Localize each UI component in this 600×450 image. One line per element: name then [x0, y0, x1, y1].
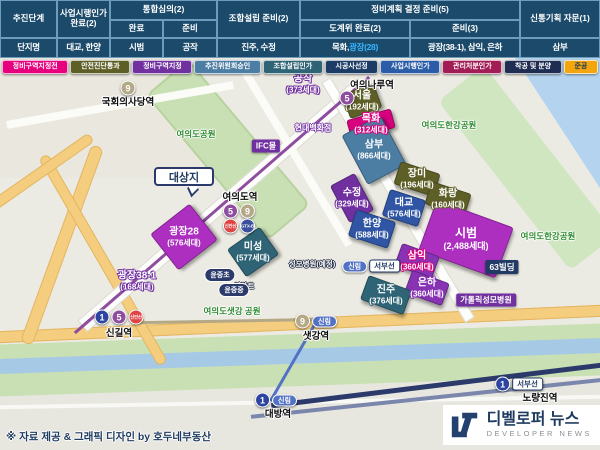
complex-units: (196세대)	[400, 180, 433, 189]
line-badge: 신림	[342, 260, 367, 272]
credit-text: ※ 자료 제공 & 그래픽 디자인 by 호두네부동산	[6, 429, 211, 444]
stage-col-sintong-advice: 신통기획 자문(1)	[520, 0, 600, 38]
landmark-label: 성모병원(예정)	[289, 259, 335, 270]
legend-item: 추진위원회승인	[194, 60, 260, 74]
complex-label: 공작(373세대)	[286, 74, 319, 95]
stage-sub-dogyewi-done: 도계위 완료(2)	[300, 20, 410, 38]
complex-label: 진주(376세대)	[369, 285, 402, 306]
complex-units: (577세대)	[236, 253, 269, 262]
station-badge-cluster: 1신림	[255, 393, 297, 408]
stage-sub-done: 완료	[110, 20, 163, 38]
landmark-label: 63빌딩	[485, 260, 518, 274]
stage-col-union-prep: 조합설립 준비(2)	[217, 0, 300, 38]
complex-label: 한양(588세대)	[355, 219, 388, 240]
complex-name: 미성	[236, 242, 269, 254]
line-badge: 9	[240, 204, 255, 219]
landmark-label: 여의도샛강 공원	[203, 305, 260, 317]
complex-label: 미성(577세대)	[236, 242, 269, 263]
developer-news-logo-icon	[449, 409, 481, 441]
legend-item: 사업시행인가	[380, 60, 440, 74]
landmark-label: 여의도한강공원	[521, 230, 576, 242]
complex-name: 수정	[335, 188, 368, 200]
station-label: 샛강역	[303, 328, 329, 342]
complex-name: 시범	[443, 227, 488, 241]
legend-item: 정비구역지정전	[2, 60, 68, 74]
complex-label: 시범(2,488세대)	[443, 227, 488, 251]
complex-units: (376세대)	[369, 296, 402, 305]
line-badge: 5	[223, 204, 238, 219]
target-site-label: 대상지	[169, 169, 199, 185]
stage-sub-prep3: 준비(3)	[410, 20, 520, 38]
line-badge: 5	[112, 310, 127, 325]
complex-name: 한양	[355, 219, 388, 231]
landmark-label: 윤중중	[218, 283, 249, 297]
infographic-canvas: 서울(192세대)목화(312세대)삼부(866세대)장미(196세대)화랑(1…	[0, 0, 600, 450]
legend-item: 관리처분인가	[442, 60, 502, 74]
complex-units: (866세대)	[357, 151, 390, 160]
complex-cell: 시범	[110, 38, 163, 58]
stage-col-integrated-review: 통합심의(2)	[110, 0, 217, 20]
complex-label: 수정(329세대)	[335, 188, 368, 209]
complex-label: 은하(360세대)	[410, 278, 443, 299]
station-label: 국회의사당역	[102, 94, 154, 108]
station-label: 여의도역	[223, 189, 258, 203]
complex-name: 삼익	[400, 251, 433, 263]
complex-name: 삼부	[357, 140, 390, 152]
complex-cell: 공작	[163, 38, 217, 58]
line-badge: 서부선	[512, 378, 543, 391]
complex-label: 대교(576세대)	[387, 198, 420, 219]
complex-units: (329세대)	[335, 199, 368, 208]
complex-units: (576세대)	[167, 238, 200, 247]
complex-name: 장미	[400, 169, 433, 181]
stage-sub-prep: 준비	[163, 20, 217, 38]
legend-item: 착공 및 분양	[504, 60, 561, 74]
station-label: 여의나루역	[350, 77, 394, 91]
complex-name: 진주	[369, 285, 402, 297]
complex-units: (360세대)	[400, 262, 433, 271]
complex-name: 공작	[286, 74, 319, 86]
landmark-label: IFC몰	[252, 140, 280, 153]
complex-label: 장미(196세대)	[400, 169, 433, 190]
complex-units: (373세대)	[286, 85, 319, 94]
complex-name: 화랑	[431, 189, 464, 201]
line-badge: 9	[121, 81, 136, 96]
line-badge: 신림	[312, 315, 337, 327]
target-site-callout: 대상지	[154, 167, 214, 186]
logo-title-en: DEVELOPER NEWS	[487, 430, 592, 438]
station-badge-cluster: 5	[340, 91, 355, 106]
stage-col-plan-decision-prep: 정비계획 결정 준비(5)	[300, 0, 520, 20]
complex-cell: 진주, 수정	[217, 38, 300, 58]
stage-col-approval-done: 사업시행인가 완료(2)	[57, 0, 110, 38]
station-badge-cluster: 1서부선	[495, 377, 543, 392]
station-badge-cluster: 15신안산	[95, 310, 144, 325]
station-label: 대방역	[265, 406, 291, 420]
complex-name: 은하	[410, 278, 443, 290]
station-badge-cluster: 59	[223, 204, 255, 219]
complex-name: 광장28	[167, 227, 200, 239]
landmark-label: 윤중초	[204, 268, 235, 282]
stage-table: 추진단계 사업시행인가 완료(2) 통합심의(2) 조합설립 준비(2) 정비계…	[0, 0, 600, 58]
complex-label: 삼부(866세대)	[357, 140, 390, 161]
station-label: 노량진역	[523, 390, 558, 404]
complex-label: 광장28(576세대)	[167, 227, 200, 248]
station-badge-cluster: 신안산GTX-B	[223, 219, 255, 234]
complex-row-header: 단지명	[0, 38, 57, 58]
complex-cell: 삼부	[520, 38, 600, 58]
line-badge: 9	[295, 314, 310, 329]
line-badge: 신림	[272, 394, 297, 406]
complex-units: (360세대)	[410, 289, 443, 298]
complex-cell: 목화, 광장(28)	[300, 38, 410, 58]
complex-label: 목화(312세대)	[354, 114, 387, 135]
logo-title-kr: 디벨로퍼 뉴스	[487, 412, 592, 428]
complex-name: 광장38-1	[118, 271, 156, 283]
complex-name: 목화	[354, 114, 387, 126]
stage-row-header: 추진단계	[0, 0, 57, 38]
landmark-label: 현대백화점	[295, 123, 332, 134]
complex-units: (312세대)	[354, 125, 387, 134]
complex-units: (168세대)	[118, 282, 156, 291]
station-label: 신길역	[106, 325, 132, 339]
line-badge: GTX-B	[240, 219, 255, 234]
legend-item: 조합설립인가	[263, 60, 323, 74]
legend-item: 정비구역지정	[132, 60, 192, 74]
complex-cell-highlight: 광장(28)	[349, 43, 378, 53]
legend-item: 시공사선정	[325, 60, 379, 74]
line-badge: 5	[340, 91, 355, 106]
stage-legend-bar: 정비구역지정전안전진단통과정비구역지정추진위원회승인조합설립인가시공사선정사업시…	[2, 59, 598, 75]
developer-news-logo: 디벨로퍼 뉴스 DEVELOPER NEWS	[443, 405, 600, 445]
complex-cell: 광장(38-1), 삼익, 은하	[410, 38, 520, 58]
landmark-label: 가톨릭성모병원	[456, 294, 516, 307]
legend-item: 준공	[564, 60, 598, 74]
complex-units: (576세대)	[387, 209, 420, 218]
complex-cell: 대교, 한양	[57, 38, 110, 58]
legend-item: 안전진단통과	[70, 60, 130, 74]
line-badge: 신안산	[129, 310, 144, 325]
line-badge: 1	[95, 310, 110, 325]
complex-units: (160세대)	[431, 200, 464, 209]
complex-name: 대교	[387, 198, 420, 210]
complex-label: 화랑(160세대)	[431, 189, 464, 210]
complex-units: (2,488세대)	[443, 241, 488, 251]
line-badge: 신안산	[223, 219, 238, 234]
complex-units: (588세대)	[355, 230, 388, 239]
line-badge: 1	[255, 393, 270, 408]
station-badge-cluster: 9	[121, 81, 136, 96]
complex-label: 광장38-1(168세대)	[118, 271, 156, 292]
line-badge: 서부선	[369, 260, 400, 273]
line-badge: 1	[495, 377, 510, 392]
complex-cell-text: 목화,	[332, 43, 349, 53]
complex-label: 삼익(360세대)	[400, 251, 433, 272]
station-badge-cluster: 9신림	[295, 314, 337, 329]
landmark-label: 여의도공원	[176, 128, 215, 140]
station-badge-cluster: 신림서부선	[342, 260, 400, 273]
landmark-label: 여의도한강공원	[422, 119, 477, 131]
